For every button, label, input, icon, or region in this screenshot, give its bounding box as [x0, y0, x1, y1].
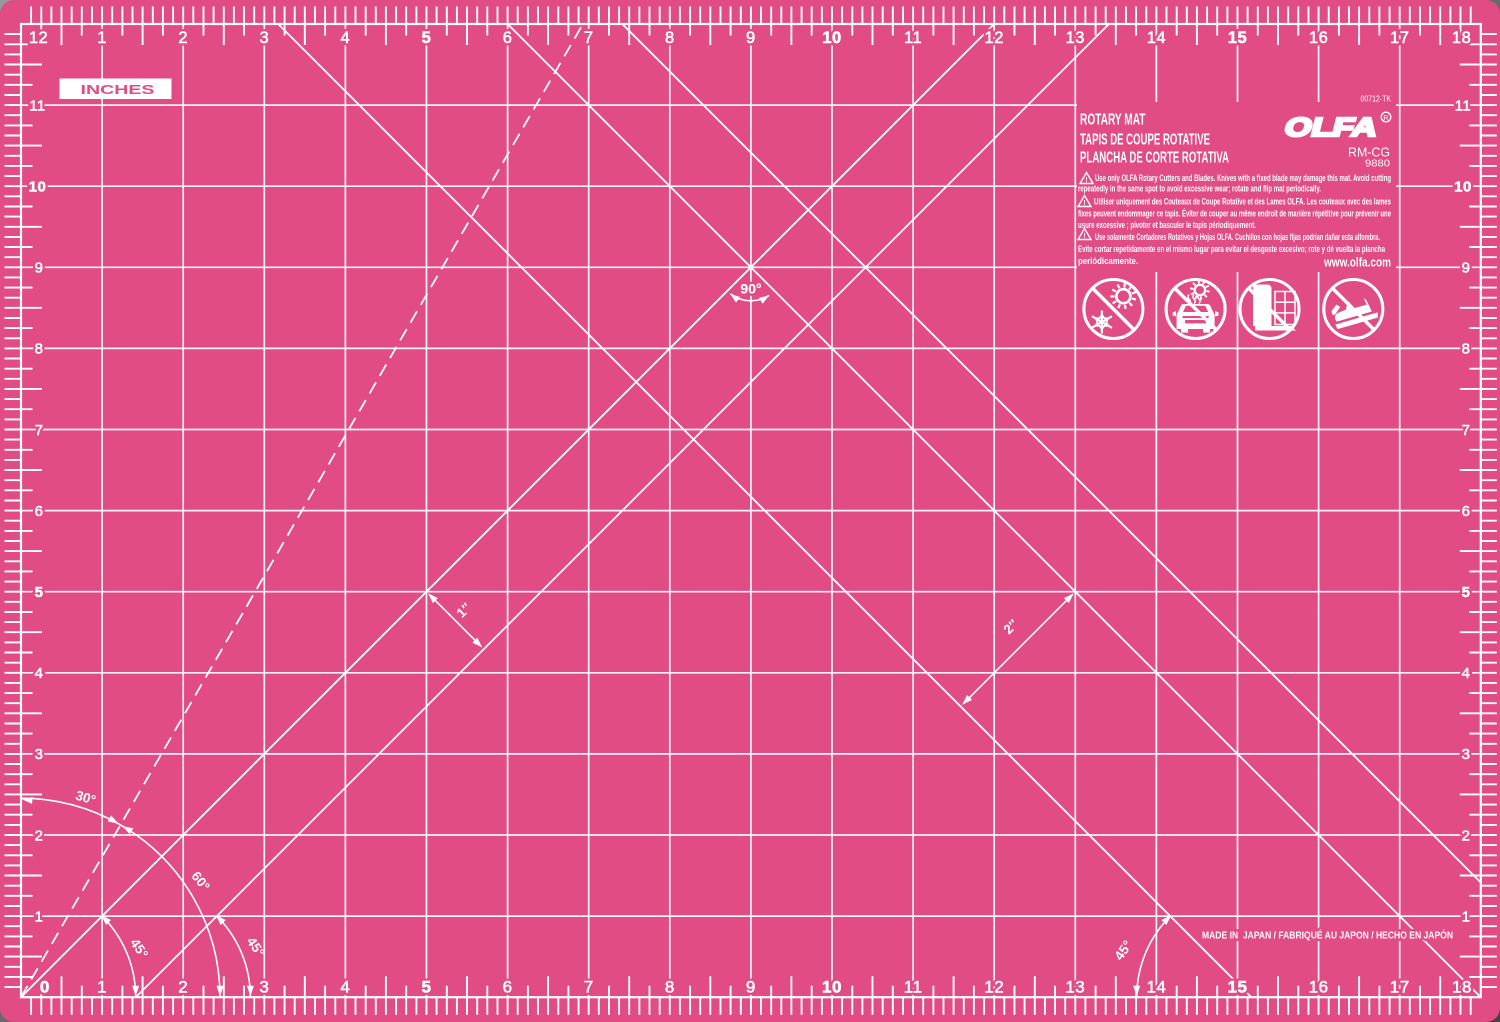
svg-text:PLANCHA DE CORTE ROTATIVA: PLANCHA DE CORTE ROTATIVA	[1080, 149, 1229, 166]
svg-text:13: 13	[1065, 977, 1085, 996]
svg-text:9: 9	[746, 977, 756, 996]
svg-text:8: 8	[665, 977, 675, 996]
svg-text:10: 10	[822, 29, 841, 47]
svg-text:17: 17	[1390, 977, 1410, 996]
svg-text:1: 1	[97, 29, 107, 47]
svg-text:8: 8	[1462, 341, 1471, 358]
svg-text:7: 7	[1462, 422, 1471, 439]
svg-text:4: 4	[35, 665, 44, 682]
svg-text:3: 3	[35, 746, 44, 763]
svg-text:11: 11	[904, 977, 923, 996]
svg-text:12: 12	[29, 29, 48, 47]
svg-text:fixes peuvent endommager ce ta: fixes peuvent endommager ce tapis. Évite…	[1078, 208, 1391, 218]
svg-text:14: 14	[1147, 29, 1166, 47]
svg-text:17: 17	[1390, 29, 1409, 47]
svg-text:!: !	[1083, 233, 1085, 240]
svg-text:OLFA: OLFA	[1282, 112, 1381, 142]
svg-text:repeatedly in the same spot to: repeatedly in the same spot to avoid exc…	[1078, 184, 1321, 194]
svg-text:Evite cortar repetidamente en: Evite cortar repetidamente en el mismo l…	[1078, 244, 1386, 254]
svg-text:6: 6	[503, 977, 513, 996]
svg-text:2: 2	[178, 29, 188, 47]
svg-text:6: 6	[503, 29, 513, 47]
svg-text:7: 7	[584, 29, 594, 47]
svg-text:00712-TK: 00712-TK	[1361, 94, 1392, 103]
svg-text:TAPIS DE COUPE ROTATIVE: TAPIS DE COUPE ROTATIVE	[1080, 132, 1210, 149]
svg-text:7: 7	[35, 422, 44, 439]
svg-text:16: 16	[1309, 977, 1329, 996]
svg-text:periódicamente.: periódicamente.	[1078, 256, 1138, 266]
svg-text:9: 9	[1462, 260, 1471, 277]
svg-text:90°: 90°	[740, 281, 761, 297]
svg-text:8: 8	[665, 29, 675, 47]
svg-text:5: 5	[422, 29, 432, 47]
svg-text:9: 9	[746, 29, 756, 47]
svg-text:10: 10	[1454, 179, 1472, 196]
svg-text:9880: 9880	[1365, 158, 1390, 170]
svg-text:11: 11	[29, 97, 46, 114]
svg-text:Utiliser uniquement des Coutea: Utiliser uniquement des Couteaux de Coup…	[1094, 196, 1391, 206]
svg-text:2: 2	[35, 827, 44, 844]
svg-text:8: 8	[35, 341, 44, 358]
svg-text:9: 9	[35, 260, 44, 277]
svg-text:6: 6	[1462, 503, 1471, 520]
svg-text:1: 1	[35, 908, 44, 925]
svg-text:www.olfa.com: www.olfa.com	[1323, 256, 1391, 270]
svg-text:ROTARY MAT: ROTARY MAT	[1080, 111, 1146, 128]
svg-text:1: 1	[97, 977, 107, 996]
svg-text:4: 4	[341, 29, 351, 47]
svg-text:15: 15	[1228, 977, 1248, 996]
svg-text:INCHES: INCHES	[81, 82, 155, 97]
svg-text:13: 13	[1066, 29, 1085, 47]
svg-text:4: 4	[1462, 665, 1471, 682]
svg-text:5: 5	[1462, 584, 1471, 601]
svg-text:10: 10	[29, 179, 47, 196]
svg-text:R: R	[1383, 113, 1389, 122]
svg-text:11: 11	[904, 29, 922, 47]
svg-text:3: 3	[259, 29, 269, 47]
svg-text:5: 5	[422, 977, 432, 996]
svg-text:4: 4	[340, 977, 350, 996]
svg-text:18: 18	[1452, 977, 1472, 996]
svg-text:3: 3	[259, 977, 269, 996]
svg-text:3: 3	[1462, 746, 1471, 763]
svg-text:18: 18	[1452, 29, 1471, 47]
svg-text:12: 12	[985, 29, 1004, 47]
svg-text:Use only OLFA Rotary Cutters a: Use only OLFA Rotary Cutters and Blades.…	[1095, 173, 1391, 183]
svg-text:5: 5	[35, 584, 44, 601]
svg-text:14: 14	[1146, 977, 1166, 996]
svg-text:11: 11	[1455, 97, 1472, 114]
svg-text:MADE IN JAPAN / FABRIQUÉ AU J: MADE IN JAPAN / FABRIQUÉ AU JAPON / HECH…	[1202, 928, 1453, 941]
svg-text:12: 12	[984, 977, 1004, 996]
svg-text:16: 16	[1309, 29, 1328, 47]
svg-text:Use solamente Cortadores Rotat: Use solamente Cortadores Rotativos y Hoj…	[1095, 232, 1380, 242]
svg-text:15: 15	[1228, 29, 1247, 47]
svg-text:0: 0	[40, 977, 50, 996]
svg-text:10: 10	[822, 977, 842, 996]
svg-text:2: 2	[1462, 827, 1471, 844]
svg-text:6: 6	[35, 503, 44, 520]
svg-text:7: 7	[584, 977, 594, 996]
svg-text:!: !	[1083, 200, 1085, 207]
svg-text:1: 1	[1462, 908, 1471, 925]
svg-text:2: 2	[178, 977, 188, 996]
svg-text:usure excessive ; pivoter et b: usure excessive ; pivoter et basculer le…	[1078, 220, 1256, 230]
